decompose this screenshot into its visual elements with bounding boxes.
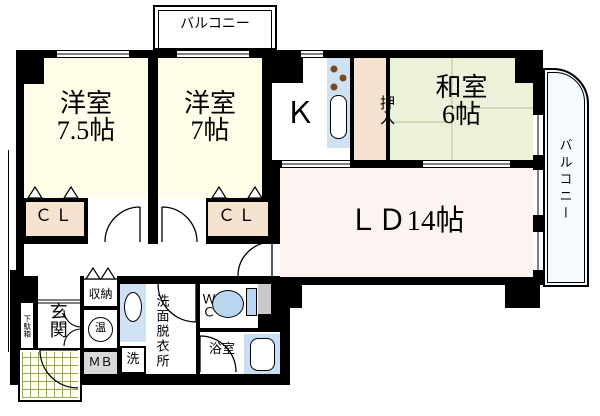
washroom-label: 洗面脱衣所: [155, 289, 169, 373]
oshiire-label: 押入: [361, 80, 393, 140]
balcony-top-label: バルコニー: [153, 18, 277, 33]
toilet-tank: [246, 288, 257, 316]
outer-line-left: [8, 150, 9, 352]
balcony-right-label: バルコニー: [558, 118, 572, 242]
window-right-ld2: [533, 232, 543, 270]
window-right-japanese: [533, 115, 543, 155]
pillar-northwest: [21, 55, 44, 84]
window-top-west2: [177, 51, 249, 57]
door-recess-western1: [88, 198, 148, 244]
entrance-porch: [18, 348, 82, 402]
opening-japanese-ld: [423, 161, 510, 167]
kitchen-sink: [330, 95, 347, 139]
closet-right-label: ＣＬ: [206, 207, 270, 225]
room-kitchen-label: Ｋ: [274, 98, 326, 129]
pillar-southeast: [505, 285, 540, 308]
room-japanese-label: 和室 6帖: [390, 74, 533, 128]
room-japanese-name: 和室: [390, 74, 533, 101]
toilet-bowl: [212, 290, 244, 318]
wc-label: ＷＣ: [201, 288, 215, 322]
window-right-ld1: [533, 170, 543, 215]
floorplan: 洋室 7.5帖 洋室 7帖 和室 6帖 Ｋ ＬＤ14帖 ＣＬ ＣＬ 押入 バルコ…: [0, 0, 600, 416]
hallway: [24, 244, 272, 276]
pillar-ld-southwest: [270, 285, 302, 308]
closet-left-label: ＣＬ: [24, 207, 86, 225]
meter-box-label: ＭＢ: [84, 356, 117, 368]
room-ld-label: ＬＤ14帖: [280, 206, 533, 236]
genkan-label: 玄関: [48, 294, 67, 346]
room-western2-size: 7帖: [158, 117, 262, 144]
bath-label: 浴室: [202, 342, 242, 356]
shuno-door-opening: [84, 276, 117, 284]
bathtub: [250, 338, 275, 371]
water-heater-label: 温: [88, 323, 113, 334]
pipe-shaft: [258, 284, 271, 314]
room-western2-name: 洋室: [158, 90, 262, 117]
pillar-kitchen-north: [272, 58, 303, 83]
door-recess-western2: [158, 198, 206, 244]
room-japanese-size: 6帖: [390, 101, 533, 128]
room-western2-label: 洋室 7帖: [158, 90, 262, 144]
room-western1-size: 7.5帖: [24, 117, 148, 144]
shoe-cabinet-label: 下駄箱: [23, 305, 31, 347]
room-western1-label: 洋室 7.5帖: [24, 90, 148, 144]
shuno-label: 収納: [84, 288, 117, 300]
opening-kitchen-ld: [282, 161, 350, 167]
window-top-kitchen: [301, 51, 323, 57]
genkan-hall-opening: [38, 276, 80, 284]
window-top-west1: [57, 51, 129, 57]
ld-door-opening: [272, 244, 280, 276]
porch-tile-grid: [22, 352, 78, 398]
vanity-sink: [124, 292, 142, 322]
laundry-label: 洗: [120, 352, 146, 366]
room-western1-name: 洋室: [24, 90, 148, 117]
